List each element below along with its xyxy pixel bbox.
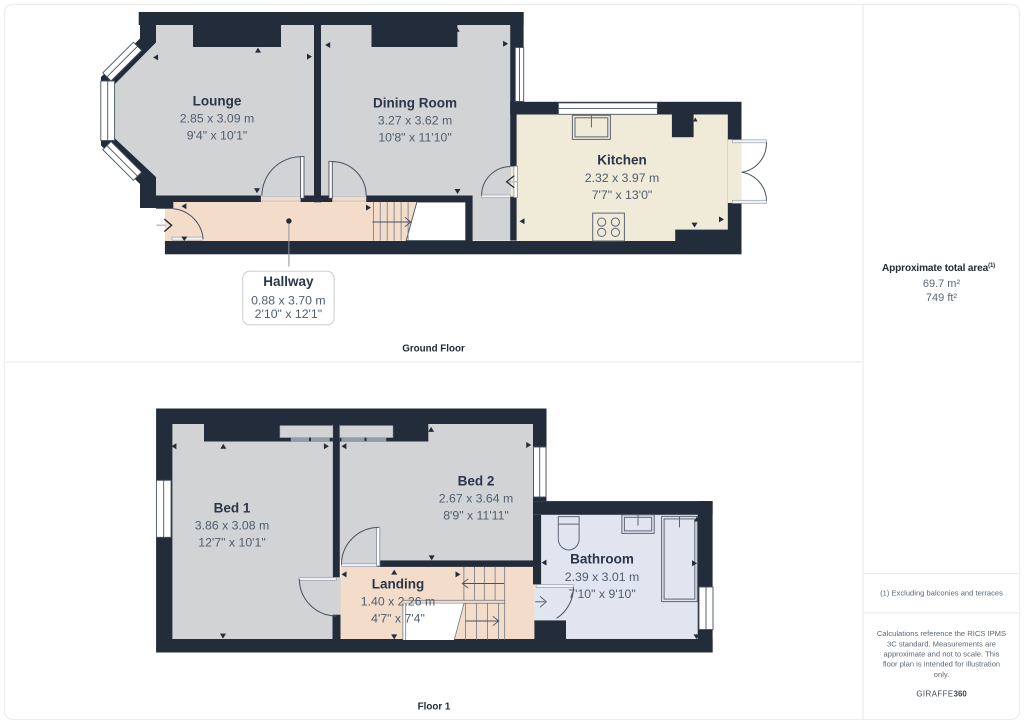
svg-text:3C standard. Measurements are: 3C standard. Measurements are (887, 639, 996, 648)
svg-text:3.27 x 3.62 m: 3.27 x 3.62 m (378, 114, 453, 128)
svg-text:2.39 x 3.01 m: 2.39 x 3.01 m (565, 570, 640, 584)
svg-text:Landing: Landing (372, 577, 425, 592)
svg-text:Bed 1: Bed 1 (214, 501, 251, 516)
svg-text:floor plan is intended for ill: floor plan is intended for illustration (883, 660, 1000, 669)
svg-text:2.85 x 3.09 m: 2.85 x 3.09 m (180, 112, 255, 126)
svg-text:Ground Floor: Ground Floor (402, 344, 465, 355)
svg-text:69.7 m²: 69.7 m² (923, 278, 961, 290)
svg-text:Lounge: Lounge (193, 94, 242, 109)
svg-text:2.32 x 3.97 m: 2.32 x 3.97 m (585, 171, 660, 185)
svg-text:1.40 x 2.26 m: 1.40 x 2.26 m (361, 595, 436, 609)
svg-text:12'7" x 10'1": 12'7" x 10'1" (198, 536, 265, 550)
svg-text:Hallway: Hallway (263, 274, 314, 289)
svg-text:4'7" x 7'4": 4'7" x 7'4" (371, 612, 425, 626)
svg-text:only.: only. (934, 670, 949, 679)
svg-text:2'10" x 12'1": 2'10" x 12'1" (255, 307, 322, 321)
svg-text:Bathroom: Bathroom (570, 552, 634, 567)
svg-text:9'4" x 10'1": 9'4" x 10'1" (187, 129, 248, 143)
svg-text:Approximate total area(1): Approximate total area(1) (882, 263, 995, 274)
svg-text:GIRAFFE360: GIRAFFE360 (916, 690, 967, 699)
svg-text:2.67 x 3.64 m: 2.67 x 3.64 m (439, 492, 514, 506)
svg-text:10'8" x 11'10": 10'8" x 11'10" (378, 131, 451, 145)
svg-text:Dining Room: Dining Room (373, 96, 457, 111)
svg-text:Calculations reference the RIC: Calculations reference the RICS IPMS (877, 629, 1006, 638)
svg-text:(1) Excluding balconies and te: (1) Excluding balconies and terraces (880, 589, 1003, 598)
svg-text:approximate and not to scale.: approximate and not to scale. This (884, 650, 1000, 659)
svg-text:8'9" x 11'11": 8'9" x 11'11" (443, 509, 509, 523)
svg-text:0.88 x 3.70 m: 0.88 x 3.70 m (251, 293, 326, 307)
svg-text:749 ft²: 749 ft² (926, 292, 958, 304)
svg-text:Kitchen: Kitchen (597, 153, 647, 168)
svg-text:Floor 1: Floor 1 (418, 702, 451, 713)
svg-text:Bed 2: Bed 2 (458, 474, 495, 489)
svg-text:7'10" x 9'10": 7'10" x 9'10" (568, 587, 635, 601)
svg-text:3.86 x 3.08 m: 3.86 x 3.08 m (195, 519, 270, 533)
svg-text:7'7" x 13'0": 7'7" x 13'0" (592, 188, 653, 202)
